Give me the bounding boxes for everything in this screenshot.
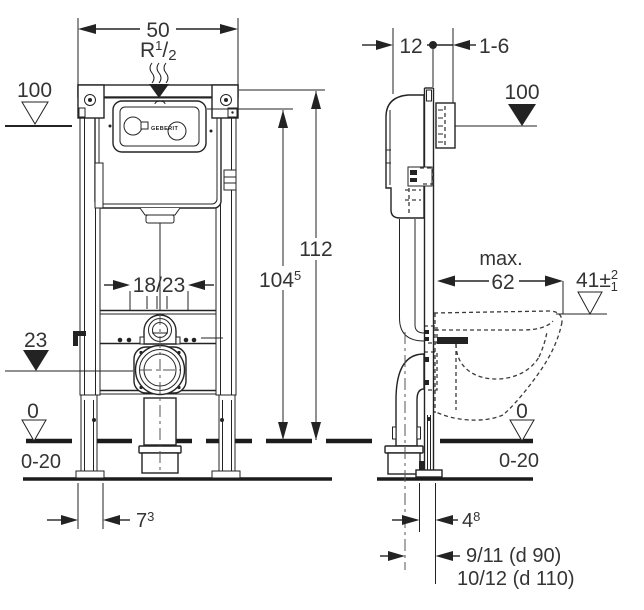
dim-label-flush-range: 18/23 — [133, 274, 186, 297]
arrow-left-icon — [436, 515, 454, 525]
logo-mark — [141, 122, 148, 129]
datum-0-left: 0 0-20 — [21, 400, 61, 473]
datum-0-right: 0 0-20 — [499, 400, 539, 472]
rail-clip — [224, 170, 236, 190]
dim-label-bowl-depth: 62 — [491, 271, 514, 294]
flush-button-left — [124, 117, 142, 135]
arrow-left-icon — [436, 551, 454, 561]
arrow-right-icon — [376, 40, 393, 50]
flush-pipe-side — [400, 219, 438, 343]
side-view: 12 1-6 100 max. 62 41±21 — [362, 28, 618, 590]
arrow-down-icon — [311, 422, 321, 440]
threaded-rod — [437, 337, 468, 344]
fixing-bolt — [192, 338, 197, 343]
arrow-left-icon — [453, 40, 470, 50]
dim-label-depth: 12 — [399, 35, 422, 58]
floor-range-label: 0-20 — [21, 451, 61, 473]
outlet-size-label-2: 10/12 (d 110) — [457, 568, 575, 590]
arrow-down-icon — [278, 422, 288, 440]
arrow-left-icon — [437, 276, 455, 287]
left-foot — [76, 471, 104, 478]
installation-frame-diagram: GEBERIT — [0, 0, 644, 610]
dimension-outlet-offsets: 48 9/11 (d 90) 10/12 (d 110) — [380, 483, 575, 590]
datum-label: 100 — [17, 79, 52, 102]
floor-range-label: 0-20 — [499, 450, 539, 472]
dim-label-outlet-offset: 48 — [462, 509, 480, 532]
datum-triangle-open-icon — [22, 420, 46, 441]
water-supply-squiggle-icon — [150, 63, 168, 83]
wall-anchor-bracket — [408, 167, 433, 186]
arrow-left-icon — [78, 24, 96, 34]
arrow-right-icon — [545, 276, 563, 287]
fixing-bolt — [184, 338, 189, 343]
datum-seat-height: 41±21 — [556, 267, 618, 314]
arrow-right-icon — [388, 551, 405, 561]
arrow-up-icon — [278, 110, 288, 128]
flush-plate-box — [436, 103, 455, 148]
left-leg — [81, 395, 97, 472]
right-foot — [212, 471, 240, 478]
brand-logo-text: GEBERIT — [151, 126, 178, 132]
cistern-side — [386, 95, 424, 218]
dim-label-foot-offset: 73 — [136, 509, 154, 532]
datum-label: 100 — [504, 81, 539, 104]
datum-triangle-filled-icon — [508, 104, 536, 126]
arrow-up-icon — [311, 91, 321, 109]
datum-triangle-open-icon — [510, 420, 534, 441]
arrow-left-icon — [103, 515, 120, 525]
rail-slide-plate — [95, 163, 103, 208]
dimension-height-112: 112 — [239, 90, 336, 440]
dimension-depth-12-1-6: 12 1-6 — [362, 28, 509, 103]
fixing-bolt — [127, 338, 132, 343]
dim-label-total-height: 112 — [299, 238, 332, 261]
wc-bowl-outline — [434, 311, 562, 420]
dim-label-wall-range: 1-6 — [479, 35, 509, 58]
arrow-right-icon — [402, 515, 420, 525]
flush-valve-outlet — [140, 208, 180, 215]
arrow-right-icon — [61, 515, 78, 525]
dimension-18-23: 18/23 — [104, 274, 214, 311]
dim-label-seat-height: 41±21 — [576, 267, 618, 294]
foot-side — [416, 470, 442, 477]
socket-lid-side — [385, 446, 423, 453]
socket-body-side — [388, 453, 420, 474]
right-leg — [219, 395, 235, 472]
reference-dot-icon — [429, 41, 437, 49]
front-view: GEBERIT — [5, 18, 336, 532]
datum-triangle-filled-icon — [23, 350, 49, 371]
datum-100-right: 100 — [455, 81, 540, 126]
fixing-bolt — [118, 338, 123, 343]
datum-23: 23 — [5, 329, 133, 371]
arrow-left-icon — [188, 280, 205, 290]
technical-drawing: GEBERIT — [0, 0, 644, 610]
dimension-max-62: max. 62 — [437, 248, 563, 314]
arrow-right-icon — [113, 280, 130, 290]
arrow-right-icon — [220, 24, 238, 34]
access-panel: GEBERIT — [109, 101, 213, 152]
datum-triangle-open-icon — [22, 102, 48, 124]
supply-thread-label: R1/2 — [140, 38, 177, 64]
datum-triangle-open-icon — [578, 292, 602, 314]
datum-100-left: 100 — [5, 79, 72, 126]
outlet-size-label-1: 9/11 (d 90) — [466, 545, 561, 567]
drain-pipe-side — [385, 352, 437, 474]
max-label: max. — [479, 248, 522, 270]
dimension-foot-offset: 73 — [47, 483, 154, 532]
datum-label: 23 — [24, 329, 47, 352]
foot-bracket — [419, 461, 425, 470]
